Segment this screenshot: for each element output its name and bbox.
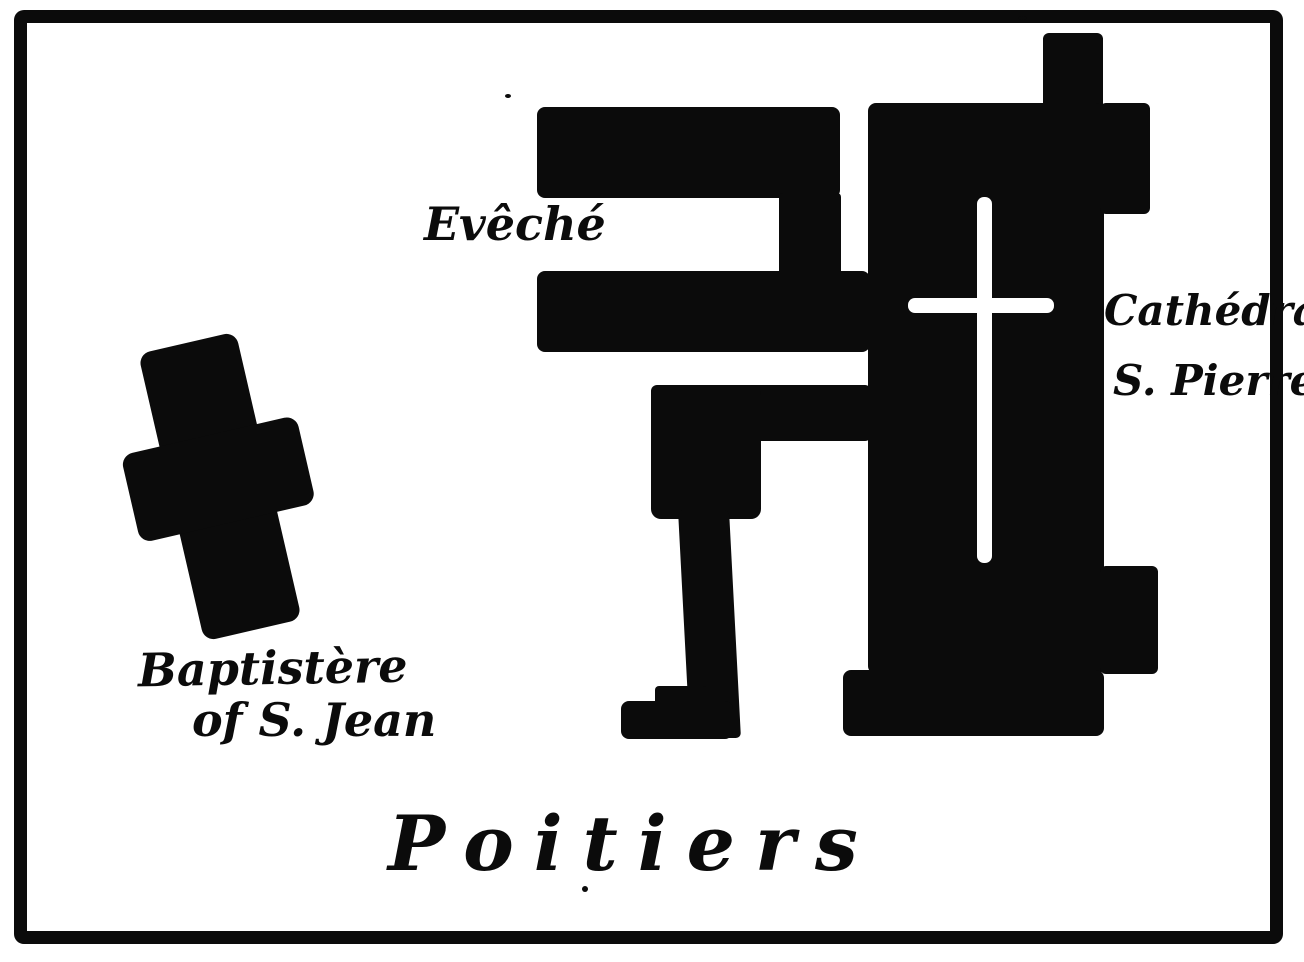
ink-speck (582, 886, 588, 892)
cathedral-tower (1043, 33, 1103, 111)
eveche-north-wing (537, 107, 840, 198)
annex-block (651, 385, 761, 519)
eveche-label: Evêché (424, 201, 606, 247)
baptistere-transept (120, 415, 316, 543)
eveche-south-wing (537, 271, 870, 352)
cathedral-label-name: Cathédral (1104, 290, 1304, 332)
cathedral-south-wing (1100, 566, 1158, 674)
baptistere-label-name: Baptistère (138, 643, 408, 694)
cathedral-label-dedication: S. Pierre (1113, 360, 1304, 402)
ink-speck (1018, 16, 1027, 20)
annex-foot (621, 701, 733, 739)
baptistere-label-dedication: of S. Jean (192, 697, 436, 743)
eveche-connector-wing (779, 193, 841, 278)
cathedral-west-front (843, 670, 1104, 736)
cathedral-north-wing (1100, 103, 1150, 214)
ink-speck (505, 94, 511, 98)
map-title: Poitiers (388, 806, 878, 882)
cathedral-cross-vertical (977, 197, 992, 563)
cathedral-cross-horizontal (908, 298, 1054, 313)
poitiers-plan: Evêché Cathédral S. Pierre Baptistère of… (0, 0, 1304, 962)
